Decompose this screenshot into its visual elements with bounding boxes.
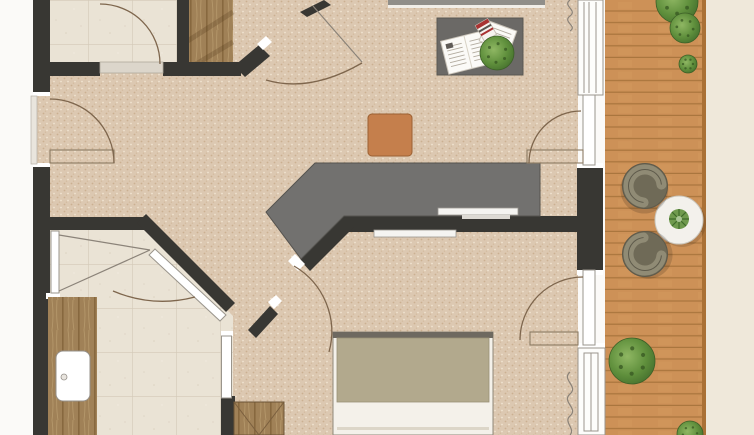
bush-plant	[480, 36, 514, 70]
balcony-door-lower-leaf	[583, 270, 595, 345]
succulent-center	[676, 216, 682, 222]
bush-leaf-detail	[494, 61, 497, 64]
bathroom-vanity	[48, 297, 97, 435]
balcony-window-top	[578, 0, 603, 95]
entry-tile-room-floor	[45, 0, 177, 64]
bush-leaf-detail	[685, 427, 687, 429]
exterior-ground	[706, 0, 754, 435]
counter-sink-strip	[438, 208, 518, 215]
wall-bathroom-right-lower	[221, 396, 235, 435]
bush-leaf-detail	[619, 365, 623, 369]
bush-leaf-detail	[689, 59, 691, 61]
cap	[33, 92, 50, 96]
bush-leaf-detail	[504, 48, 507, 51]
wall-nook-bottom	[163, 62, 241, 76]
bed-headboard	[333, 332, 493, 338]
top-edge-window-band	[388, 0, 545, 8]
bush-leaf-detail	[682, 63, 684, 65]
balcony-door-upper-leaf	[583, 95, 595, 165]
top-band-white	[388, 5, 545, 8]
bush-leaf-detail	[689, 20, 692, 23]
bush-leaf-detail	[488, 46, 491, 49]
bush-leaf-detail	[689, 67, 691, 69]
bush-leaf-detail	[641, 366, 645, 370]
bush-plant	[679, 55, 697, 73]
wall-right-middle	[577, 168, 603, 270]
bush-plant	[609, 338, 655, 384]
bush-leaf-detail	[619, 352, 623, 356]
wardrobe-body	[234, 402, 284, 435]
bush-leaf-detail	[696, 432, 698, 434]
wall-tile-nook-divider	[177, 0, 189, 64]
band-shelf-strip	[374, 230, 456, 237]
sink-drain	[61, 374, 67, 380]
bush-leaf-detail	[630, 346, 634, 350]
top-band-gray	[388, 0, 545, 5]
wall-left-upper	[33, 0, 50, 95]
bush-leaf-detail	[681, 19, 684, 22]
floor-plan	[0, 0, 754, 435]
bush-leaf-detail	[687, 34, 690, 37]
bush-leaf-detail	[630, 372, 634, 376]
bush-plant	[670, 13, 700, 43]
ottoman	[368, 114, 412, 156]
bush-leaf-detail	[641, 353, 645, 357]
bedroom-side-leaf	[222, 336, 232, 398]
bush-leaf-detail	[692, 63, 694, 65]
bed	[333, 332, 493, 435]
bed-blanket	[337, 338, 489, 402]
bush-leaf-detail	[665, 6, 669, 10]
bush-leaf-detail	[684, 67, 686, 69]
bush-leaf-detail	[692, 426, 694, 428]
bush-leaf-detail	[684, 59, 686, 61]
bed-sheet-fold	[337, 427, 489, 430]
bush-leaf-detail	[679, 33, 682, 36]
cap	[221, 331, 233, 336]
threshold-tile-room	[100, 62, 163, 73]
bush-leaf-detail	[487, 55, 490, 58]
bush-leaf-detail	[685, 6, 689, 10]
bathroom-pivot-leaf	[51, 231, 59, 293]
bush-leaf-detail	[675, 25, 678, 28]
wall-tile-room-bottom	[50, 62, 100, 76]
wall-bathroom-top	[48, 217, 146, 230]
wardrobe	[234, 402, 284, 435]
bush-leaf-detail	[692, 28, 695, 31]
entry-door-threshold	[31, 96, 37, 164]
floor-plan-page	[0, 0, 754, 435]
bush-leaf-detail	[497, 42, 500, 45]
counter-strip-detail	[462, 215, 510, 219]
bush-leaf-detail	[503, 57, 506, 60]
